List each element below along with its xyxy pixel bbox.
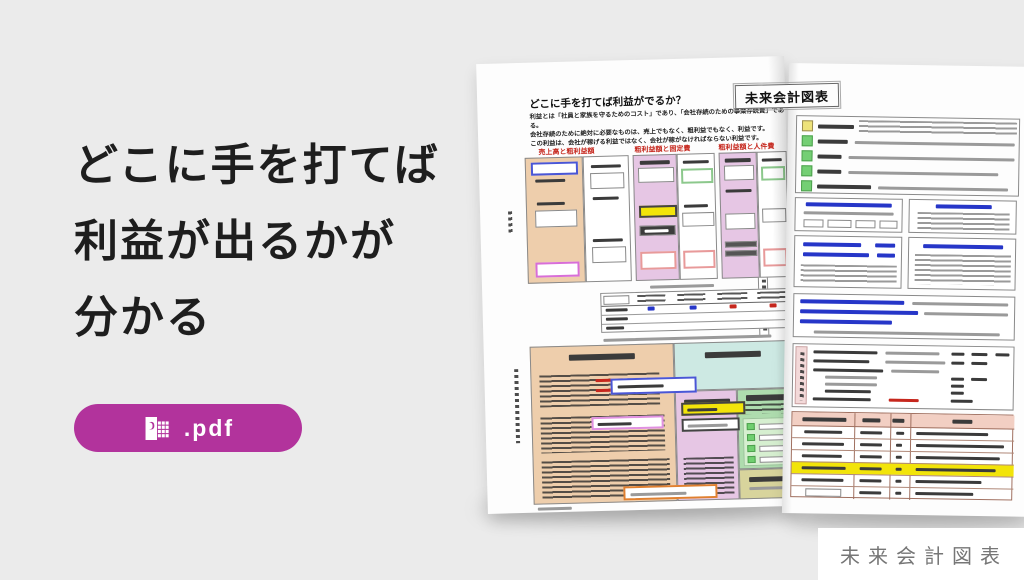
blurred-text (895, 492, 901, 495)
value-box (879, 220, 897, 228)
blurred-text (648, 307, 655, 311)
value-box (638, 167, 674, 183)
blurred-text (915, 492, 973, 496)
blurred-text (762, 158, 782, 162)
blurred-text (912, 302, 1008, 307)
blurred-text (818, 124, 854, 129)
blurred-text (895, 480, 901, 483)
chart-col (757, 151, 790, 278)
blurred-text (803, 242, 861, 247)
blurred-text (923, 244, 1003, 249)
blurred-text (802, 454, 842, 458)
blurred-text (971, 378, 987, 381)
blurred-text (951, 353, 964, 356)
legend-square (747, 445, 755, 452)
blurred-text (859, 491, 881, 494)
blurred-text (860, 455, 882, 458)
blurred-text (804, 211, 894, 215)
blurred-text (885, 361, 945, 365)
blurred-text (896, 444, 902, 447)
blurred-text (705, 351, 761, 358)
legend-square (747, 434, 755, 441)
legend-square-green (801, 165, 812, 176)
blurred-text (645, 229, 669, 233)
blurred-text (896, 468, 902, 471)
cell (603, 295, 629, 305)
blurred-text (690, 305, 697, 309)
blurred-text (818, 154, 842, 158)
blurred-text (801, 478, 843, 482)
info-box (794, 197, 903, 233)
value-box (682, 417, 740, 432)
value-box (590, 172, 624, 189)
value-box (855, 220, 875, 228)
legend-square (748, 456, 756, 463)
result-table (790, 411, 1013, 500)
blurred-text (535, 179, 565, 183)
blurred-text (889, 399, 919, 402)
blurred-text (725, 158, 751, 163)
highlight-box-red (683, 250, 715, 269)
chart-col-sales (525, 156, 586, 283)
blurred-text (637, 294, 665, 304)
blurred-text (591, 164, 621, 168)
blurred-text (859, 479, 881, 482)
legend-square (747, 423, 755, 430)
blurred-text (860, 431, 882, 434)
blurred-text (995, 353, 1009, 356)
blurred-text (593, 196, 619, 200)
blurred-text (952, 420, 972, 424)
blurred-text (891, 370, 939, 374)
blurred-text (687, 408, 717, 412)
blurred-text (537, 202, 565, 206)
formula-box (793, 293, 1016, 340)
highlight-box-green (761, 166, 785, 181)
blurred-text (730, 304, 737, 308)
highlight-box-orange (623, 484, 717, 500)
pdf-download-button[interactable]: .pdf (74, 404, 302, 452)
chart-col (583, 155, 632, 282)
brochure-right-page (782, 63, 1024, 517)
blurred-text (757, 291, 785, 301)
blurred-text (859, 120, 1017, 135)
blurred-text (951, 400, 973, 403)
blurred-text (936, 204, 992, 209)
table-header-row (792, 412, 1014, 429)
blurred-text (818, 139, 848, 143)
legend-square-green (802, 135, 813, 146)
blurred-text (896, 456, 902, 459)
blurred-text (915, 480, 981, 484)
blurred-text (848, 171, 998, 176)
blurred-text (804, 430, 842, 434)
blurred-text (800, 352, 805, 400)
blurred-text (688, 424, 728, 428)
highlight-box-yellow (639, 205, 677, 218)
info-box (793, 235, 902, 289)
blurred-text (951, 362, 964, 365)
dark-box (639, 225, 675, 236)
blurred-text (569, 353, 635, 361)
blurred-text (825, 376, 877, 380)
blurred-text (855, 141, 1015, 147)
grid-line (792, 449, 1014, 453)
chart-col-fixed (633, 154, 680, 281)
blurred-text (508, 211, 513, 233)
highlight-box-blue (610, 376, 696, 394)
blurred-text (640, 160, 670, 165)
blurred-text (813, 397, 871, 401)
blurred-text (917, 212, 1009, 231)
dark-strip (725, 250, 757, 257)
blurred-text (618, 384, 664, 388)
blurred-text (817, 184, 871, 189)
blurred-text (915, 254, 1011, 286)
blurred-text (746, 394, 786, 401)
value-box (682, 212, 714, 227)
blurred-text (717, 292, 747, 302)
blurred-text (825, 390, 871, 394)
blurred-text (813, 359, 869, 363)
blurred-text (800, 319, 892, 324)
value-box (535, 210, 577, 228)
highlight-box-green (681, 168, 713, 184)
blurred-text (924, 312, 1008, 316)
legend-square-yellow (802, 120, 813, 131)
blurred-text (684, 204, 708, 208)
blurred-text (593, 238, 623, 242)
mini-table (600, 288, 791, 333)
blurred-text (726, 189, 752, 193)
blurred-text (885, 352, 939, 356)
highlight-box-blue (531, 161, 578, 175)
info-box (908, 199, 1017, 235)
value-box (827, 220, 851, 228)
blurred-text (814, 330, 1000, 336)
value-box (592, 246, 626, 263)
value-box (803, 219, 823, 227)
side-strip (795, 346, 808, 404)
blurred-text (677, 293, 705, 303)
blurred-text (802, 442, 844, 446)
legend-square-green (801, 150, 812, 161)
blurred-text (971, 353, 987, 356)
blurred-text (806, 202, 892, 207)
value-box (805, 488, 841, 497)
blurred-text (862, 418, 880, 422)
chart-col (677, 153, 718, 280)
chart-col-labor (719, 152, 760, 279)
strategy-section (792, 343, 1015, 410)
blurred-text (916, 432, 988, 436)
headline-line-1: どこに手を打てば (74, 128, 440, 204)
blurred-text (817, 169, 841, 173)
corner-label: 未来会計図表 (818, 528, 1024, 580)
value-box (724, 165, 754, 181)
value-box (725, 213, 755, 230)
spreadsheet-file-icon (142, 415, 172, 442)
value-box (762, 208, 786, 223)
blurred-text (800, 309, 918, 315)
headline: どこに手を打てば 利益が出るかが 分かる (74, 128, 440, 356)
blurred-text (630, 492, 686, 496)
highlight-box-red (763, 248, 787, 267)
blurred-text (802, 417, 846, 422)
blurred-text (606, 308, 628, 312)
blurred-text (860, 467, 882, 470)
grid-line (602, 319, 790, 325)
blurred-text (849, 156, 1015, 162)
blurred-text (813, 350, 877, 354)
info-box (907, 237, 1016, 291)
blurred-text (803, 252, 869, 257)
blurred-text (606, 326, 624, 329)
blurred-text (916, 456, 1000, 460)
highlight-box-pink (535, 261, 579, 277)
blurred-text (538, 507, 572, 511)
promo-card: どこに手を打てば 利益が出るかが 分かる .pdf どこに手を打てば利益がでるか… (0, 0, 1024, 580)
brochure-left-page: どこに手を打てば利益がでるか？ 利益とは「社員と家族を守るためのコスト」であり、… (476, 56, 796, 514)
highlight-box-yellow (681, 401, 745, 416)
blurred-text (825, 383, 877, 387)
blurred-text (892, 419, 904, 423)
blurred-text (514, 369, 520, 443)
blurred-text (896, 432, 904, 435)
legend-box (795, 115, 1020, 197)
brochure-title-box: 未来会計図表 (735, 83, 840, 109)
grid-line (602, 310, 790, 316)
blurred-text (683, 160, 709, 164)
legend-square-green (801, 180, 812, 191)
blurred-text (916, 444, 1004, 448)
blurred-text (770, 303, 777, 307)
blurred-text (875, 243, 895, 247)
blurred-text (800, 299, 904, 305)
blurred-text (598, 422, 632, 426)
blurred-text (951, 385, 964, 388)
highlight-box-red (640, 251, 676, 270)
headline-line-2: 利益が出るかが (74, 204, 440, 280)
headline-line-3: 分かる (74, 280, 440, 356)
blurred-text (801, 264, 897, 284)
blurred-text (971, 362, 987, 365)
blurred-text (860, 443, 882, 446)
dark-strip (725, 241, 757, 248)
grid-line (792, 437, 1014, 441)
blurred-text (877, 253, 895, 257)
pdf-button-label: .pdf (184, 415, 234, 442)
blurred-text (951, 378, 964, 381)
blurred-text (650, 284, 714, 289)
blurred-text (951, 392, 964, 395)
highlight-box-pink (591, 415, 663, 430)
blurred-text (606, 317, 628, 321)
blurred-text (878, 186, 1008, 191)
blurred-text (813, 368, 883, 372)
